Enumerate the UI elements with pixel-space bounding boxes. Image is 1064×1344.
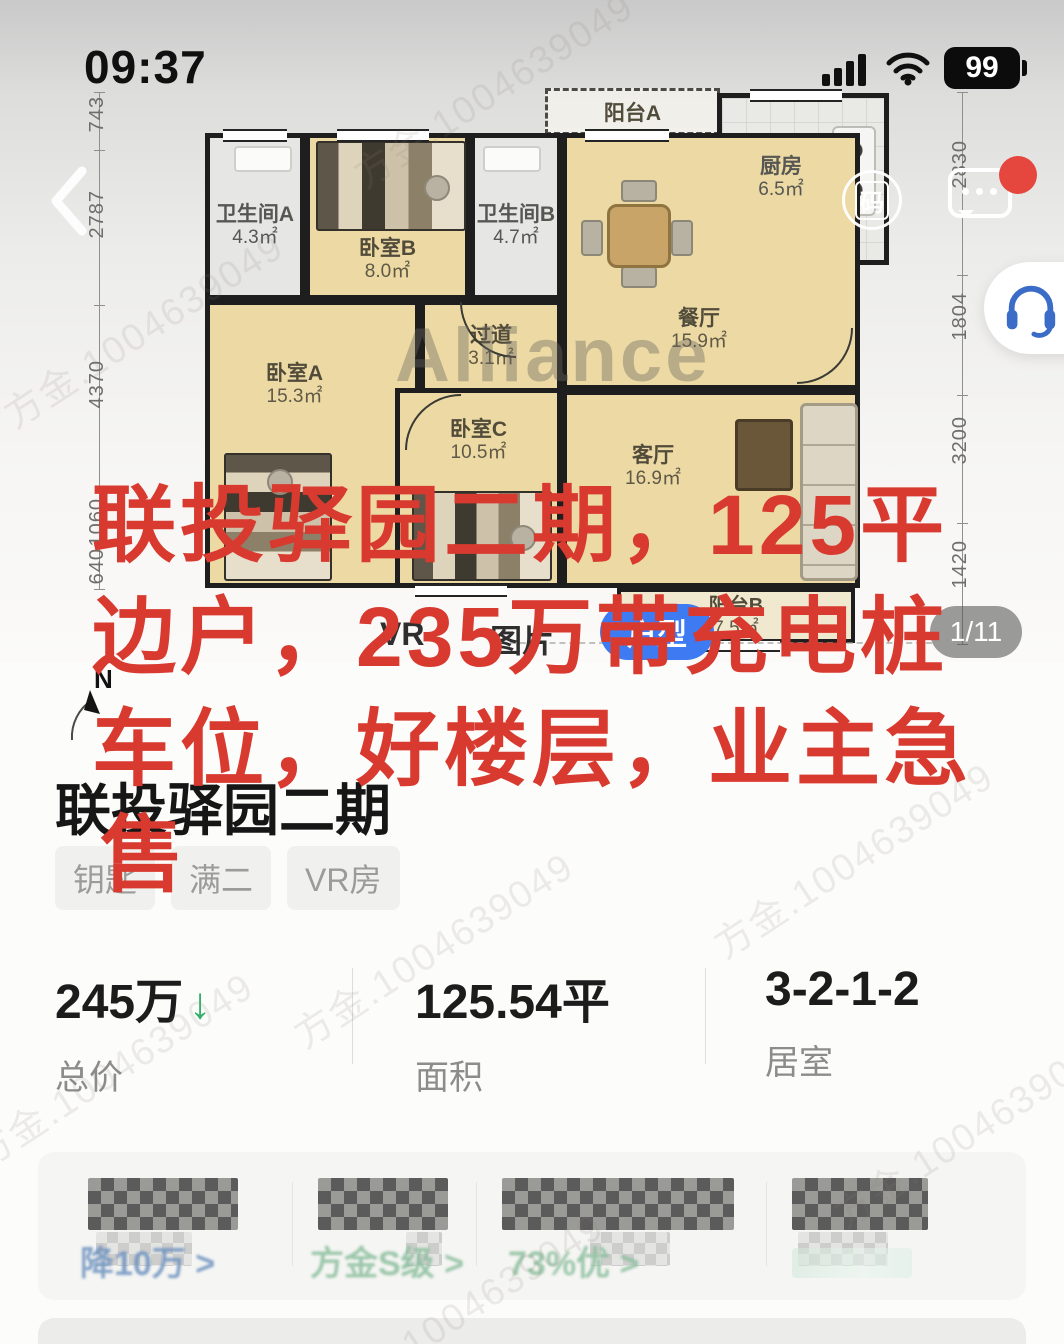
status-time: 09:37 <box>84 40 207 94</box>
dimension-label: 3200 <box>949 416 972 465</box>
pixelated-text <box>88 1178 238 1230</box>
dining-table-icon <box>579 176 695 292</box>
dimension-label: 1804 <box>949 292 972 341</box>
dimension-label: 1420 <box>949 540 972 589</box>
previous-photo-button[interactable] <box>42 163 98 244</box>
qr-icon: 码 <box>855 181 889 220</box>
window <box>585 129 669 142</box>
pixelated-text <box>792 1248 912 1278</box>
stat-layout: 3-2-1-2 居室 <box>765 962 920 1084</box>
alliance-watermark: Alliance <box>395 312 710 399</box>
wifi-icon <box>884 50 932 91</box>
headphones-icon <box>1002 278 1060 338</box>
pixelated-text <box>318 1178 448 1230</box>
window <box>223 129 287 142</box>
room-bathroom-b: 卫生间B4.7㎡ <box>470 133 562 300</box>
divider <box>705 968 706 1064</box>
sink-icon <box>234 146 292 172</box>
tag-vr-house: VR房 <box>287 846 399 910</box>
promo-item-agent-grade[interactable]: 方金S级 > <box>310 1152 480 1300</box>
overlay-line-2: 边户，235万带充电桩 <box>92 570 948 691</box>
room-balcony-a: 阳台A <box>545 88 720 135</box>
window <box>750 89 842 102</box>
property-listing-screen: 09:37 99 阳台A 厨房6.5㎡ 卫生间A4.3㎡ 卧室B8.0㎡ 卫生间… <box>0 0 1064 1344</box>
qr-code-button[interactable]: 码 <box>842 170 902 230</box>
overlay-line-1: 联投驿园二期，125平 <box>92 458 948 579</box>
stat-area: 125.54平 面积 <box>415 962 610 1099</box>
promo-item-price-drop[interactable]: 降10万 > <box>78 1152 278 1300</box>
dimension-label: 743 <box>86 96 109 132</box>
notification-badge <box>999 156 1037 194</box>
pixelated-text <box>502 1178 734 1230</box>
battery-indicator: 99 <box>944 47 1020 89</box>
overlay-line-3: 车位，好楼层，业主急 <box>92 682 972 803</box>
sink-icon <box>483 146 541 172</box>
cellular-signal-icon <box>822 52 870 86</box>
overlay-line-4: 售 <box>100 788 188 909</box>
next-card-edge <box>38 1318 1026 1344</box>
